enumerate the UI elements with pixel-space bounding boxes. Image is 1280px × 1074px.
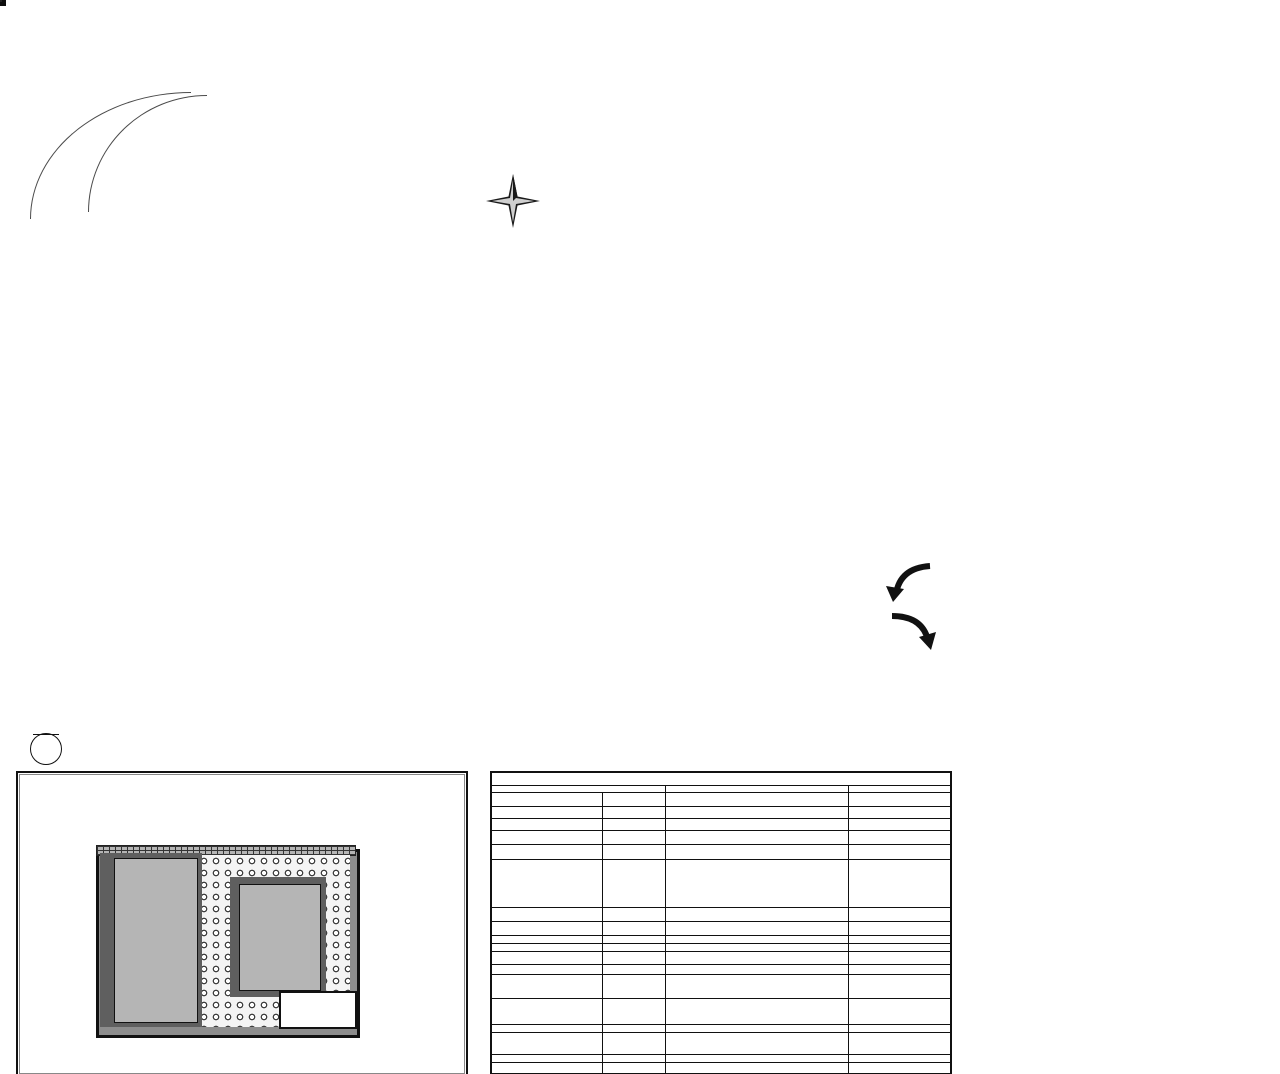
north-arrow-icon xyxy=(486,174,540,228)
block-a-footprint xyxy=(114,858,198,1023)
stats-address xyxy=(642,773,646,785)
right-out-arrow-icon xyxy=(890,608,938,650)
row-amenity xyxy=(492,1033,602,1054)
detail-divider xyxy=(33,734,59,735)
row-zone xyxy=(492,793,602,806)
site-statistics-table xyxy=(490,771,952,1074)
right-in-arrow-icon xyxy=(884,560,932,602)
stats-title xyxy=(492,773,642,785)
landscaping-diagram-panel xyxy=(16,771,468,1074)
surface-parking-hatch xyxy=(0,0,2,2)
row-bike xyxy=(492,999,602,1024)
site-plan-sheet xyxy=(0,0,1280,1074)
row-lot-width xyxy=(492,819,602,830)
ramp-outline xyxy=(279,991,357,1029)
site-plan-drawing xyxy=(0,0,1280,770)
row-landscaping xyxy=(492,1063,602,1074)
row-footprint xyxy=(492,922,602,935)
block-b-footprint xyxy=(239,884,321,991)
row-front-yard xyxy=(492,845,602,859)
row-parking xyxy=(492,975,602,998)
row-lot-area xyxy=(492,807,602,818)
row-height xyxy=(492,831,602,844)
detail-bubble xyxy=(30,733,62,765)
row-units xyxy=(492,952,602,964)
row-side-yard xyxy=(492,860,602,907)
row-rear-yard xyxy=(492,908,602,921)
row-lot-coverage xyxy=(492,944,602,951)
